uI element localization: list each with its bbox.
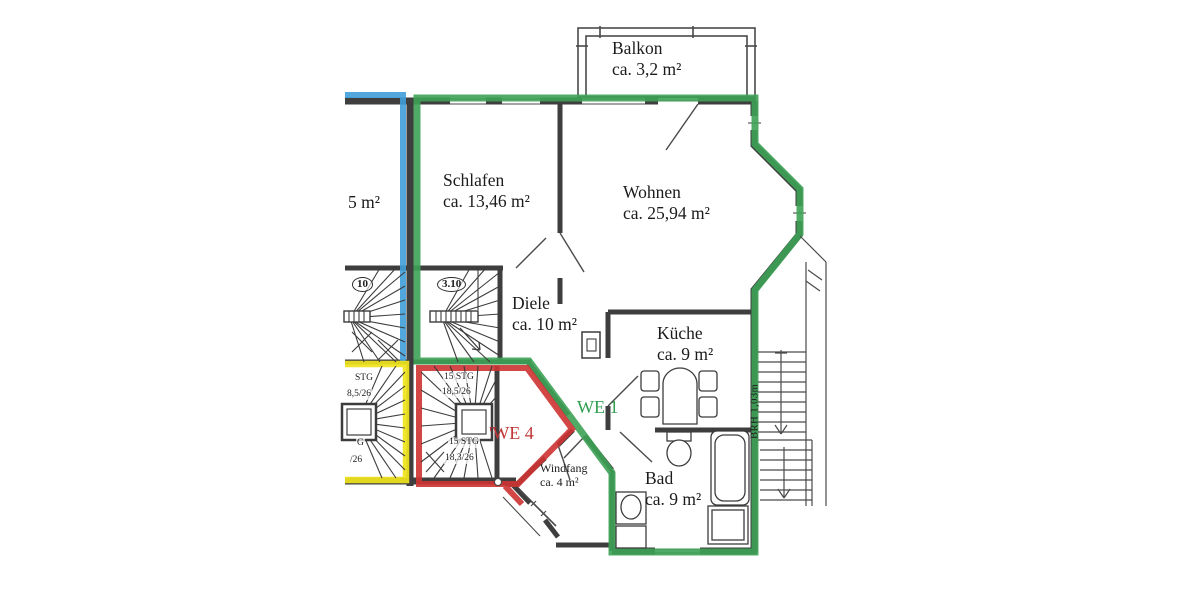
stair-label-cropped: STG bbox=[354, 373, 374, 384]
room-name: Windfang bbox=[540, 461, 588, 475]
room-label-cropped-left: 5 m² bbox=[348, 192, 380, 213]
room-label-bad: Bad ca. 9 m² bbox=[645, 468, 701, 510]
floorplan-canvas bbox=[0, 0, 1200, 600]
room-label-kueche: Küche ca. 9 m² bbox=[657, 323, 713, 365]
stair-label: 15 STG bbox=[443, 372, 475, 383]
room-label-schlafen: Schlafen ca. 13,46 m² bbox=[443, 170, 530, 212]
room-label-windfang: Windfang ca. 4 m² bbox=[540, 461, 588, 490]
unit-label-we4: 'WE 4 bbox=[489, 423, 534, 445]
room-label-diele: Diele ca. 10 m² bbox=[512, 293, 577, 335]
entrance-door bbox=[503, 490, 556, 536]
room-area: ca. 9 m² bbox=[657, 344, 713, 365]
room-name: Balkon bbox=[612, 38, 663, 58]
room-area: ca. 25,94 m² bbox=[623, 203, 710, 224]
stair-label-cropped: G bbox=[356, 438, 365, 449]
kitchen-furniture bbox=[641, 368, 717, 424]
floorplan-page: Balkon ca. 3,2 m² Schlafen ca. 13,46 m² … bbox=[0, 0, 1200, 600]
room-name: Wohnen bbox=[623, 182, 681, 202]
room-area: ca. 10 m² bbox=[512, 314, 577, 335]
room-name: Diele bbox=[512, 293, 550, 313]
room-name: Bad bbox=[645, 468, 673, 488]
room-area: ca. 13,46 m² bbox=[443, 191, 530, 212]
room-label-balkon: Balkon ca. 3,2 m² bbox=[612, 38, 681, 80]
stair-label: 18,3/26 bbox=[444, 453, 475, 464]
room-area: 5 m² bbox=[348, 192, 380, 212]
parapet-height-label: BRH 1,03m bbox=[749, 384, 762, 439]
unit-label-we1: WE 1 bbox=[577, 397, 618, 419]
electric-box bbox=[582, 332, 600, 358]
stair-label: 18,5/26 bbox=[441, 387, 472, 398]
door-hinge-mark bbox=[495, 479, 502, 486]
stair-label-cropped: /26 bbox=[349, 455, 363, 466]
room-name: Küche bbox=[657, 323, 703, 343]
room-name: Schlafen bbox=[443, 170, 504, 190]
room-area: ca. 9 m² bbox=[645, 489, 701, 510]
stair-label: 15 STG bbox=[448, 437, 480, 448]
room-area: ca. 4 m² bbox=[540, 475, 588, 489]
room-label-wohnen: Wohnen ca. 25,94 m² bbox=[623, 182, 710, 224]
stair-label-cropped: 8,5/26 bbox=[346, 389, 372, 400]
room-area: ca. 3,2 m² bbox=[612, 59, 681, 80]
